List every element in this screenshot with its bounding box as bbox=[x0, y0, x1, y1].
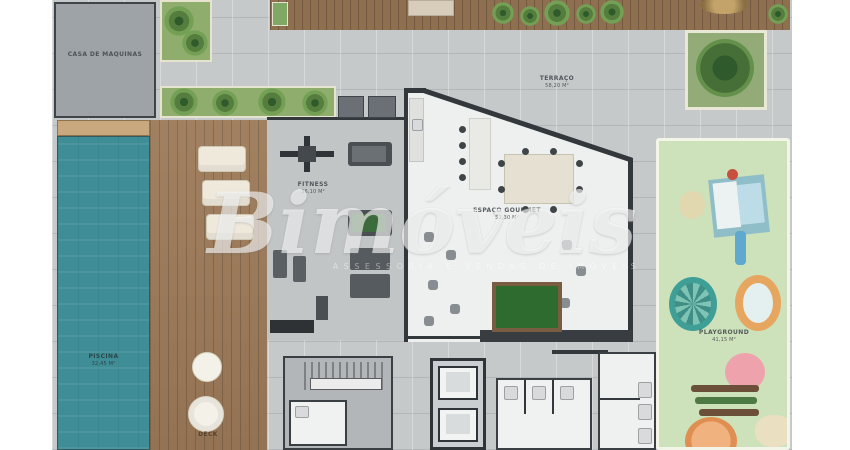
toilet-icon bbox=[560, 386, 574, 400]
bench-icon bbox=[273, 250, 287, 278]
seesaw-bar-icon bbox=[699, 409, 759, 416]
cable-machine-icon bbox=[280, 136, 334, 172]
treadmill-icon bbox=[348, 142, 392, 166]
upper-deck bbox=[270, 0, 790, 30]
gourmet-label: ESPAÇO GOURMET52,30 m² bbox=[452, 206, 562, 223]
shrub-icon bbox=[768, 4, 788, 24]
palm-icon bbox=[258, 88, 286, 116]
chair-icon bbox=[498, 186, 505, 193]
armchair-icon bbox=[450, 304, 460, 314]
chair-icon bbox=[576, 186, 583, 193]
palm-icon bbox=[212, 90, 238, 116]
cream-blob-icon bbox=[755, 415, 790, 447]
weight-machine-icon bbox=[350, 248, 390, 270]
grill-module-icon bbox=[368, 96, 396, 118]
changing-room bbox=[598, 352, 656, 450]
sun-lounger bbox=[198, 146, 246, 172]
palm-icon bbox=[302, 90, 328, 116]
shrub-icon bbox=[600, 0, 624, 24]
deck-table bbox=[192, 352, 222, 382]
orange-ring-icon bbox=[735, 275, 781, 331]
armchair-icon bbox=[424, 316, 434, 326]
kitchen-counter bbox=[409, 98, 424, 162]
palm-icon bbox=[170, 88, 198, 116]
stair-landing bbox=[310, 378, 382, 390]
terrace-label: TERRAÇO58,20 m² bbox=[512, 74, 602, 91]
chair-icon bbox=[522, 148, 529, 155]
armchair-icon bbox=[424, 232, 434, 242]
fixture-icon bbox=[295, 406, 309, 418]
pool-steps bbox=[57, 120, 150, 136]
deck-umbrella bbox=[188, 396, 224, 432]
elevator-bank bbox=[430, 358, 486, 450]
fitness-label: FITNESS36,10 m² bbox=[278, 180, 348, 197]
pergola-structure bbox=[408, 0, 454, 16]
plan-canvas: CASA DE MÁQUINAS bbox=[52, 0, 792, 450]
cream-circle bbox=[679, 191, 705, 219]
bar-stool-icon bbox=[459, 158, 466, 165]
planter-vertical bbox=[160, 0, 212, 62]
sun-lounger bbox=[206, 214, 254, 240]
shrub-icon bbox=[520, 6, 540, 26]
shrub-icon bbox=[576, 4, 596, 24]
deck-planter bbox=[272, 2, 288, 26]
wall-right bbox=[628, 158, 633, 342]
toilet-icon bbox=[532, 386, 546, 400]
sink-icon bbox=[412, 119, 423, 131]
fixture-icon bbox=[638, 428, 652, 444]
gym-mat bbox=[270, 320, 314, 333]
chair-icon bbox=[550, 148, 557, 155]
machine-room bbox=[54, 2, 156, 118]
thatch-umbrella-icon bbox=[700, 0, 748, 14]
elevator-cab bbox=[438, 408, 478, 442]
sun-lounger bbox=[202, 180, 250, 206]
floorplan-image: CASA DE MÁQUINAS bbox=[0, 0, 850, 450]
armchair-icon bbox=[428, 280, 438, 290]
stall-divider bbox=[524, 380, 526, 414]
machine-room-label: CASA DE MÁQUINAS bbox=[54, 50, 156, 59]
structure-flag-icon bbox=[727, 169, 738, 180]
bar-stool-icon bbox=[459, 174, 466, 181]
bar-counter bbox=[469, 118, 491, 190]
orange-circle-icon bbox=[685, 417, 737, 450]
wall-bottom-thin bbox=[408, 336, 480, 339]
inner-wall bbox=[600, 398, 640, 400]
restrooms bbox=[496, 378, 592, 450]
fixture-icon bbox=[638, 382, 652, 398]
dining-table bbox=[504, 154, 574, 204]
stall-divider bbox=[552, 380, 554, 414]
chair-icon bbox=[498, 160, 505, 167]
palm-icon bbox=[182, 30, 208, 56]
armchair-icon bbox=[446, 250, 456, 260]
shrub-icon bbox=[492, 2, 514, 24]
bar-stool-icon bbox=[459, 142, 466, 149]
wall-left bbox=[404, 90, 408, 342]
pool-label: PISCINA32,45 m² bbox=[57, 352, 150, 369]
fixture-icon bbox=[638, 404, 652, 420]
merry-go-round-icon bbox=[669, 277, 717, 331]
tree-planter bbox=[685, 30, 767, 110]
tree-icon bbox=[696, 39, 754, 97]
elevator-cab bbox=[438, 366, 478, 400]
gym-stand-icon bbox=[316, 296, 328, 320]
play-structure-icon bbox=[708, 174, 770, 238]
seesaw-bar-icon bbox=[691, 385, 759, 392]
stair-block bbox=[283, 356, 393, 450]
toilet-icon bbox=[504, 386, 518, 400]
chair-icon bbox=[576, 160, 583, 167]
bench-icon bbox=[293, 256, 306, 282]
deck-label: DECK bbox=[188, 430, 228, 439]
armchair-icon bbox=[562, 240, 572, 250]
shrub-icon bbox=[544, 0, 570, 26]
grill-module-icon bbox=[338, 96, 364, 118]
swimming-pool bbox=[57, 136, 150, 450]
bar-stool-icon bbox=[459, 126, 466, 133]
seesaw-bar-icon bbox=[695, 397, 757, 404]
treadmill-icon bbox=[348, 210, 392, 236]
planter-horizontal bbox=[160, 86, 336, 118]
slide-icon bbox=[735, 231, 746, 265]
billiard-table bbox=[492, 282, 562, 332]
weight-machine-icon bbox=[350, 274, 390, 298]
armchair-icon bbox=[576, 266, 586, 276]
playground-label: PLAYGROUND41,15 m² bbox=[664, 328, 784, 345]
playground-area bbox=[656, 138, 790, 450]
